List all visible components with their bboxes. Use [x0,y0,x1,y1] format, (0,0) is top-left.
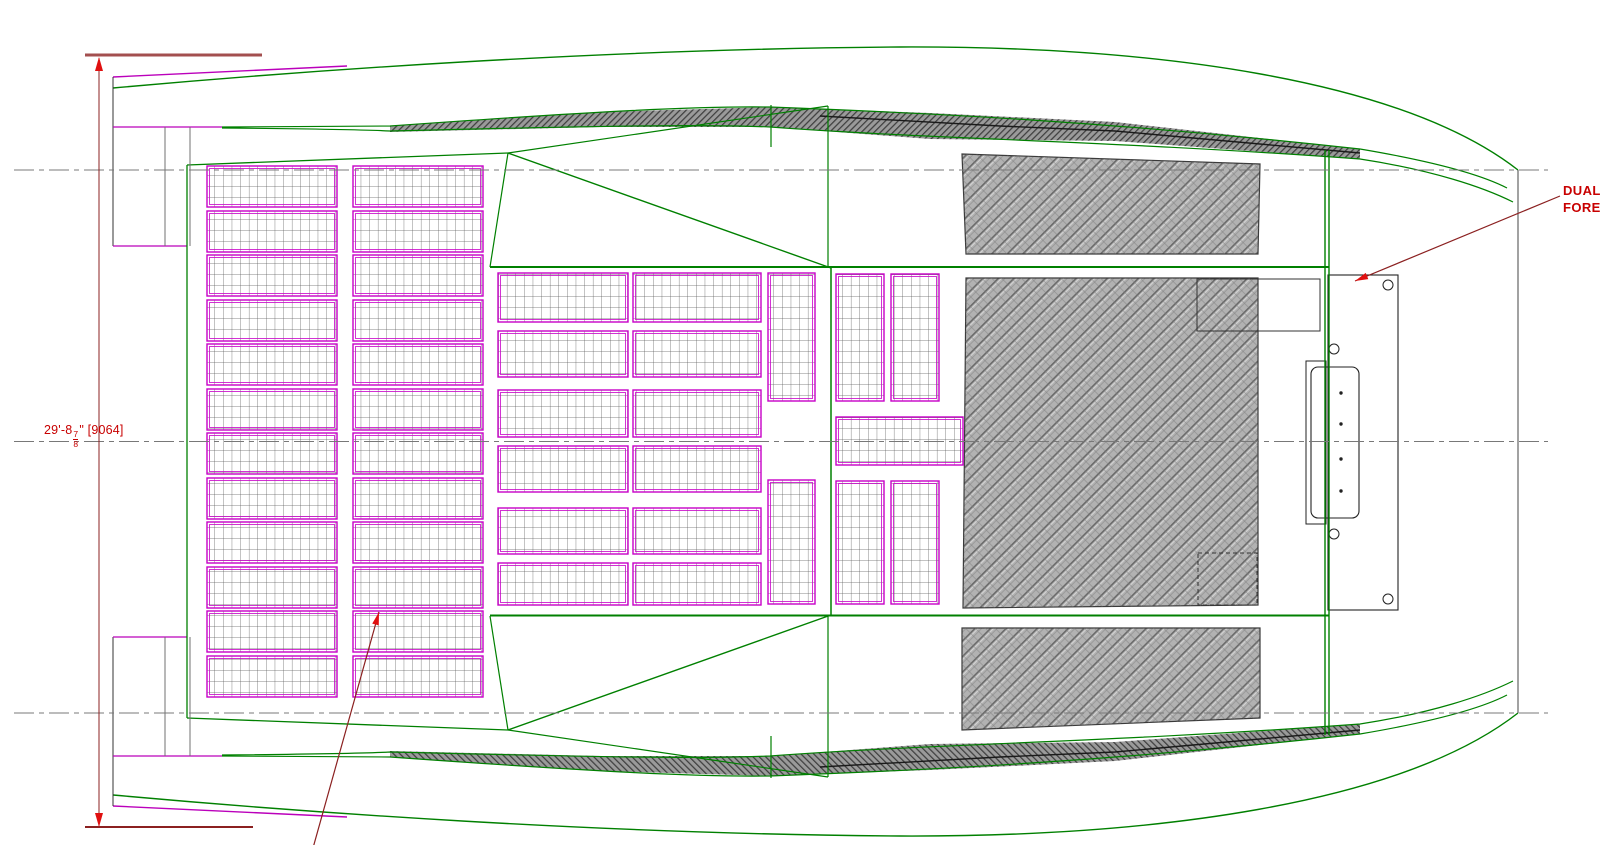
deck-panel [207,567,337,608]
deck-panel [498,563,628,605]
deck-panel [207,656,337,697]
deck-panel [353,344,483,385]
dual-fore-callout-text: DUAL FORE [1563,183,1600,217]
deck-panel [207,522,337,563]
callout-line-1: DUAL [1563,183,1600,200]
overall-length-dimension-text: 29'-878" [9064] [44,423,124,448]
deck-panel [207,166,337,207]
deck-panel [353,389,483,430]
cad-drawing-stage: 29'-878" [9064] DUAL FORE [0,0,1600,845]
deck-panel [353,211,483,252]
deck-panel [207,478,337,519]
deck-panel [207,344,337,385]
deck-edge-line [187,153,508,165]
bolt-hole [1329,529,1339,539]
deck-panel [353,656,483,697]
deck-panel [768,480,815,604]
deck-panel [353,255,483,296]
deck-panels-group [207,166,963,697]
dimension-arrow [95,813,103,827]
deck-panel [836,481,884,604]
bolt-hole [1329,344,1339,354]
bracket-outline [1306,361,1326,524]
deck-panel [353,611,483,652]
deck-panel [207,255,337,296]
deck-panel [353,522,483,563]
deck-panel [633,390,761,437]
deck-panel [633,446,761,492]
deck-panel [498,331,628,377]
bolt-hole [1383,594,1393,604]
deck-panel [891,274,939,401]
dim-whole: 29'-8 [44,423,72,437]
deck-panel [633,273,761,322]
fastener-dot [1339,422,1342,425]
catamaran-deck-plan [0,0,1600,845]
leader-dual-fore [1355,196,1560,281]
deck-panel [207,611,337,652]
deck-panel [353,433,483,474]
deck-panel [353,166,483,207]
bolt-hole [1383,280,1393,290]
forward-beam-group [1325,150,1329,735]
deck-panel [353,567,483,608]
deck-panel [353,300,483,341]
roof-hatch-top-cross [962,154,1260,254]
fastener-dot [1339,457,1342,460]
deck-panel [207,433,337,474]
deck-panel [207,211,337,252]
deck-panel [633,331,761,377]
deck-panel [353,478,483,519]
deck-panel [207,389,337,430]
roof-hatch-bottom-cross [962,628,1260,730]
deck-panel [633,508,761,554]
deck-panel [498,390,628,437]
deck-panel [498,273,628,322]
fastener-dot [1339,391,1342,394]
bow-plate [1328,275,1398,610]
dim-suffix: " [9064] [79,423,123,437]
dim-fraction: 78 [73,430,78,448]
roof-hatch-main-cross [963,278,1258,608]
deck-panel [836,274,884,401]
deck-panel [633,563,761,605]
dimension-arrow [95,57,103,71]
deck-panel [498,446,628,492]
fastener-dot [1339,489,1342,492]
deck-panel [768,273,815,401]
callout-line-2: FORE [1563,200,1600,217]
deck-panel [891,481,939,604]
deck-panel [207,300,337,341]
deck-panel [498,508,628,554]
